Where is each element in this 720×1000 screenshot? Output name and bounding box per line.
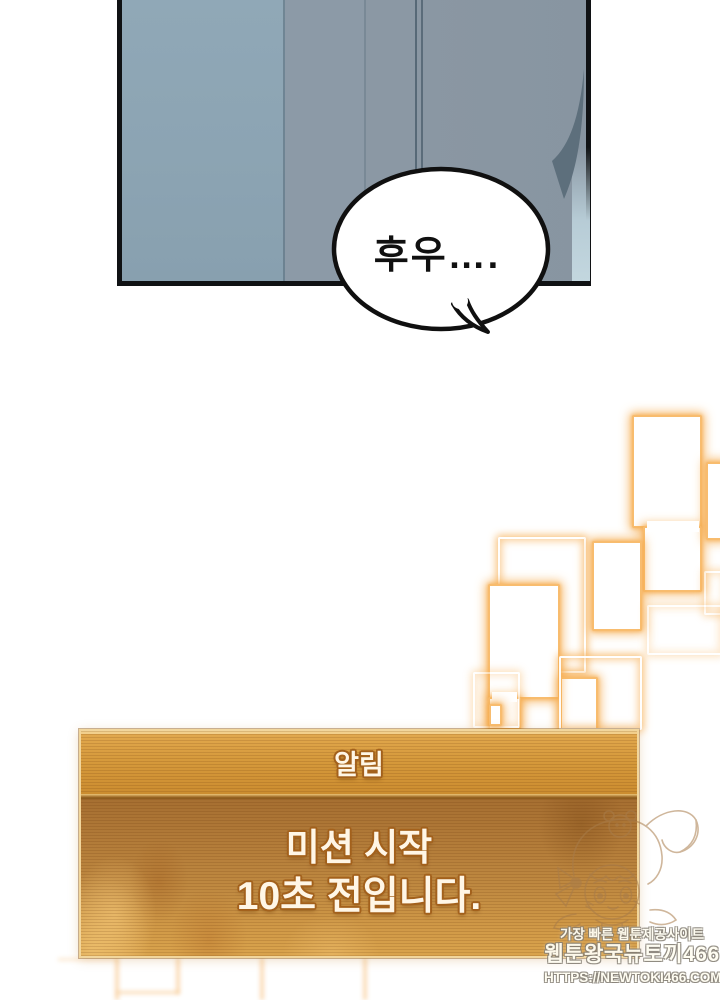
hud-glow-outline bbox=[559, 656, 642, 730]
hud-glow-rect-joint bbox=[492, 692, 517, 702]
hud-glow-rect bbox=[592, 541, 642, 631]
notification-header: 알림 bbox=[81, 731, 637, 794]
hud-glow-rect bbox=[643, 526, 702, 592]
hud-glow-rect bbox=[489, 704, 502, 726]
notification-title: 알림 bbox=[334, 743, 384, 782]
wall-section-left bbox=[122, 0, 285, 281]
speech-bubble-text: 후우…. bbox=[325, 224, 549, 279]
speech-bubble: 후우…. bbox=[325, 160, 557, 342]
hud-glow-rect-joint bbox=[647, 521, 699, 532]
hud-glow-trace bbox=[363, 958, 367, 1000]
hud-glow-trace bbox=[117, 991, 179, 994]
hud-glow-trace bbox=[58, 958, 118, 961]
watermark-site-name: 웹툰왕국뉴토끼466 bbox=[544, 943, 720, 966]
wall-seam-line bbox=[283, 0, 285, 281]
watermark-tagline: 가장 빠른 웹툰제공사이트 bbox=[544, 926, 720, 943]
watermark: 가장 빠른 웹툰제공사이트 웹툰왕국뉴토끼466 HTTPS://NEWTOKI… bbox=[544, 926, 720, 987]
watermark-site-url: HTTPS://NEWTOKI466.COM bbox=[544, 968, 720, 987]
hud-glow-rect bbox=[706, 462, 720, 540]
hud-glow-trace bbox=[176, 958, 180, 994]
hud-glow-outline bbox=[647, 605, 720, 655]
hud-glow-rect bbox=[632, 415, 702, 528]
hud-glow-trace bbox=[260, 958, 264, 1000]
chibi-mascot-sketch bbox=[546, 796, 710, 946]
webtoon-page: 후우…. 알림 미션 시작 10초 전입니다. bbox=[0, 0, 720, 1000]
